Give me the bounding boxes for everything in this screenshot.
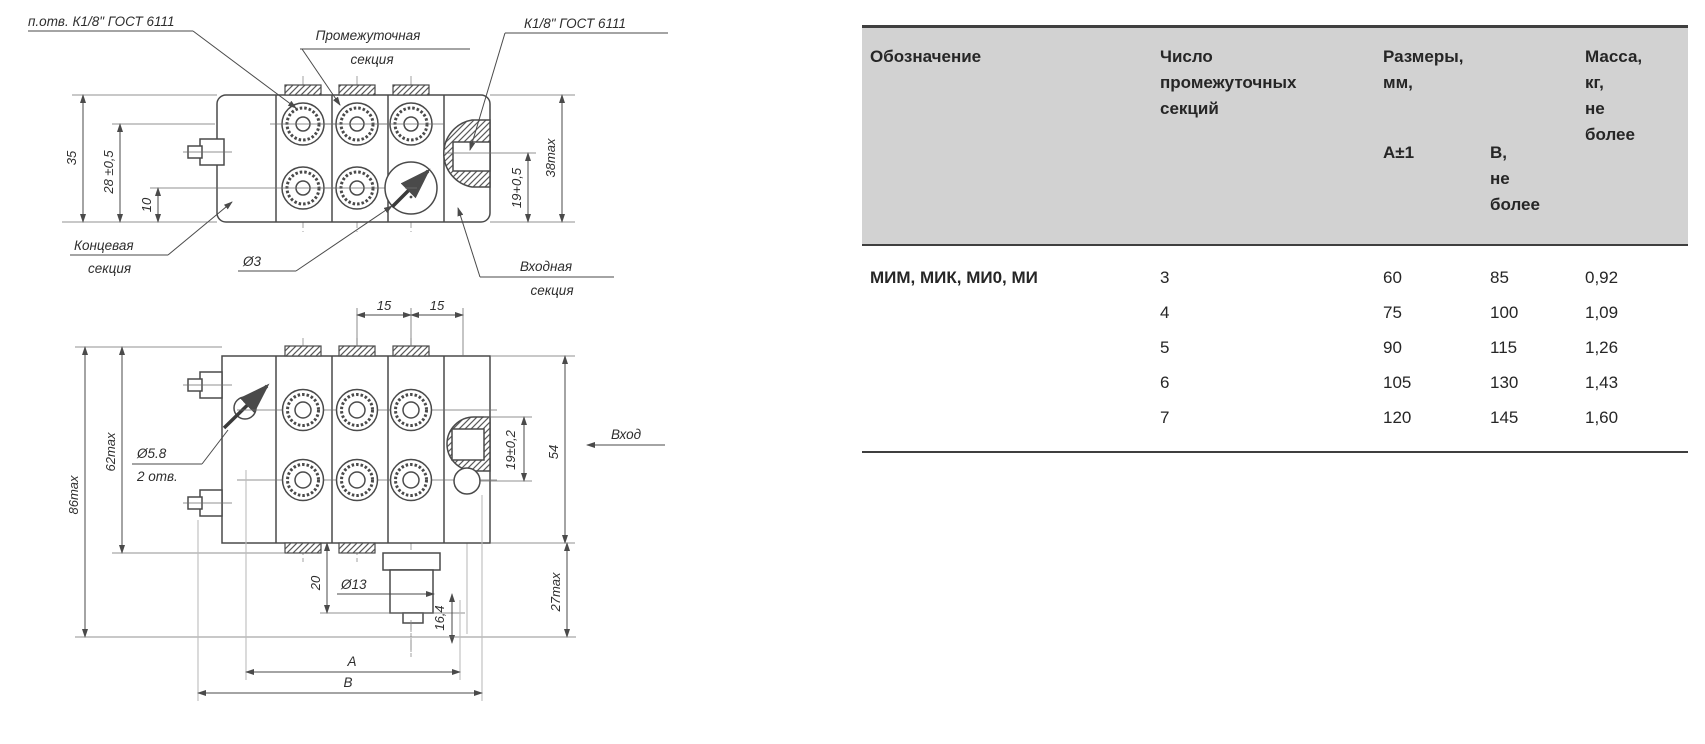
col-header-mass: Масса, кг, не более bbox=[1585, 44, 1688, 218]
dim-B: B bbox=[343, 675, 352, 690]
front-view-dim-27: 27max bbox=[548, 543, 567, 637]
callout-mount-holes: Ø5.8 2 отв. bbox=[132, 430, 228, 484]
table-cell: 115 bbox=[1490, 330, 1585, 365]
dim-15a: 15 bbox=[377, 298, 392, 313]
dim-d13: Ø13 bbox=[340, 577, 367, 592]
top-view: 35 28 ±0,5 10 19+0,5 38max bbox=[28, 14, 668, 298]
technical-drawing: 35 28 ±0,5 10 19+0,5 38max bbox=[0, 0, 710, 744]
callout-inlet-2: секция bbox=[530, 283, 573, 298]
table-cell: 4 bbox=[1160, 295, 1383, 330]
dim-64: 16,4 bbox=[432, 605, 447, 630]
callout-ports: п.отв. К1/8" ГОСТ 6111 bbox=[28, 14, 296, 108]
callout-inlet-1: Входная bbox=[520, 259, 572, 274]
top-view-indicator bbox=[385, 162, 437, 214]
table-cell: 0,92 bbox=[1585, 260, 1688, 295]
inlet-flow: Вход bbox=[587, 427, 665, 445]
table-cell: 105 bbox=[1383, 365, 1490, 400]
dim-15b: 15 bbox=[430, 298, 445, 313]
table-cell: 6 bbox=[1160, 365, 1383, 400]
callout-inlet-thread: К1/8" ГОСТ 6111 bbox=[470, 16, 668, 150]
dim-10: 10 bbox=[139, 197, 154, 212]
col-header-a: А±1 bbox=[1383, 140, 1490, 218]
table-cell: 1,60 bbox=[1585, 400, 1688, 435]
front-view-dim-64: 16,4 bbox=[432, 594, 452, 643]
dim-a-column: 60 75 90 105 120 bbox=[1383, 260, 1490, 435]
col-header-sections: Число промежуточных секций bbox=[1160, 44, 1383, 218]
dim-35: 35 bbox=[64, 150, 79, 165]
dim-27max: 27max bbox=[548, 572, 563, 613]
size-table: Обозначение Число промежуточных секций Р… bbox=[862, 25, 1688, 453]
col-header-designation: Обозначение bbox=[870, 44, 1160, 218]
dim-A: A bbox=[346, 654, 356, 669]
top-view-bolt bbox=[183, 139, 232, 165]
top-view-dim-38: 38max bbox=[490, 95, 575, 222]
dim-62max: 62max bbox=[103, 432, 118, 472]
callout-intermediate-2: секция bbox=[350, 52, 393, 67]
table-cell: 75 bbox=[1383, 295, 1490, 330]
dim-19-02: 19±0,2 bbox=[503, 429, 518, 469]
callout-intermediate-1: Промежуточная bbox=[316, 28, 421, 43]
dim-20: 20 bbox=[308, 575, 323, 591]
callout-hole-count: 2 отв. bbox=[136, 469, 178, 484]
front-view: 15 15 54 19±0,2 27max Вхо bbox=[66, 298, 665, 701]
dim-19-05: 19+0,5 bbox=[509, 167, 524, 208]
dim-b-column: 85 100 115 130 145 bbox=[1490, 260, 1585, 435]
callout-hole-dia: Ø5.8 bbox=[136, 446, 167, 461]
table-cell: 100 bbox=[1490, 295, 1585, 330]
dim-d3: Ø3 bbox=[242, 254, 262, 269]
dim-54: 54 bbox=[546, 445, 561, 459]
table-cell: 1,43 bbox=[1585, 365, 1688, 400]
table-cell: 145 bbox=[1490, 400, 1585, 435]
table-body: МИМ, МИК, МИ0, МИ 3 4 5 6 7 60 75 90 105… bbox=[862, 246, 1688, 453]
page: 35 28 ±0,5 10 19+0,5 38max bbox=[0, 0, 1705, 744]
col-header-dimensions: Размеры, мм, bbox=[1383, 44, 1585, 132]
table-cell: 1,26 bbox=[1585, 330, 1688, 365]
table-cell: 120 bbox=[1383, 400, 1490, 435]
callout-inlet-thread-text: К1/8" ГОСТ 6111 bbox=[524, 16, 626, 31]
table-cell: 5 bbox=[1160, 330, 1383, 365]
table-cell: 90 bbox=[1383, 330, 1490, 365]
table-cell: 60 bbox=[1383, 260, 1490, 295]
callout-ports-text: п.отв. К1/8" ГОСТ 6111 bbox=[28, 14, 174, 29]
designation-cell: МИМ, МИК, МИ0, МИ bbox=[870, 260, 1160, 435]
callout-end-2: секция bbox=[88, 261, 131, 276]
table-cell: 130 bbox=[1490, 365, 1585, 400]
mass-column: 0,92 1,09 1,26 1,43 1,60 bbox=[1585, 260, 1688, 435]
callout-intermediate-section: Промежуточная секция bbox=[300, 28, 470, 105]
table-cell: 7 bbox=[1160, 400, 1383, 435]
col-header-b: В, не более bbox=[1490, 140, 1585, 218]
table-cell: 1,09 bbox=[1585, 295, 1688, 330]
dim-28: 28 ±0,5 bbox=[101, 150, 116, 195]
sections-column: 3 4 5 6 7 bbox=[1160, 260, 1383, 435]
table-header: Обозначение Число промежуточных секций Р… bbox=[862, 25, 1688, 246]
dim-86max: 86max bbox=[66, 475, 81, 515]
inlet-label: Вход bbox=[611, 427, 642, 442]
table-cell: 3 bbox=[1160, 260, 1383, 295]
table-cell: 85 bbox=[1490, 260, 1585, 295]
dim-38max: 38max bbox=[543, 138, 558, 178]
callout-end-1: Концевая bbox=[74, 238, 134, 253]
